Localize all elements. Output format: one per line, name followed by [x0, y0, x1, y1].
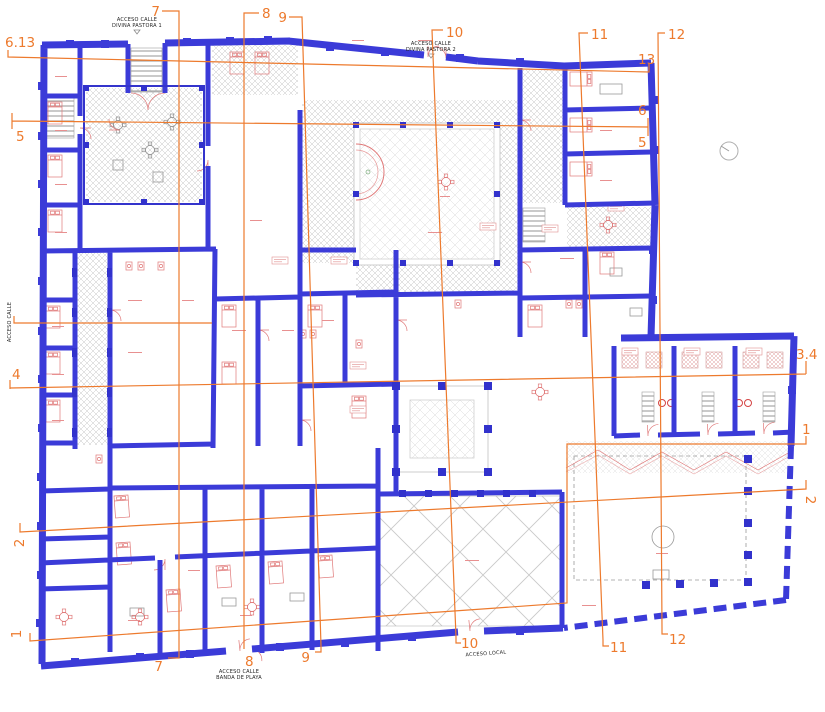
section-marker-top-12: 12 — [668, 27, 685, 43]
section-marker-left-6-13: 6.13 — [5, 35, 35, 51]
access-label-left-street: ACCESO CALLE — [7, 302, 13, 342]
courtyard-top-left — [86, 88, 202, 202]
patio-central — [360, 129, 494, 259]
floor-plan-svg: 7 8 9 10 11 12 13 6 5 3.4 1 2 6.13 5 4 2… — [0, 0, 825, 712]
patio-left-strip — [77, 253, 108, 445]
section-marker-bottom-7: 7 — [154, 659, 163, 675]
section-marker-right-13: 13 — [638, 52, 655, 68]
section-marker-left-5: 5 — [16, 129, 25, 145]
canopy-band — [566, 441, 790, 473]
access-label-banda-de-playa-line2: BANDA DE PLAYA — [216, 675, 262, 681]
section-marker-right-1: 1 — [802, 422, 811, 438]
patio-columned — [410, 400, 474, 458]
section-marker-top-10: 10 — [446, 25, 463, 41]
section-marker-right-6: 6 — [638, 103, 647, 119]
section-line-12 — [658, 33, 668, 634]
section-marker-left-1: 1 — [9, 630, 25, 639]
section-line-11 — [579, 33, 609, 646]
section-marker-top-8: 8 — [262, 6, 271, 22]
floor-plan-canvas: 7 8 9 10 11 12 13 6 5 3.4 1 2 6.13 5 4 2… — [0, 0, 825, 712]
courtyard-circle-feature — [652, 526, 674, 548]
section-marker-bottom-8: 8 — [245, 654, 254, 670]
section-marker-left-2: 2 — [12, 539, 28, 548]
section-marker-right-2: 2 — [802, 496, 818, 505]
section-marker-right-5: 5 — [638, 135, 647, 151]
access-label-divina-pastora-2-line2: DIVINA PASTORA 2 — [406, 47, 456, 53]
section-marker-bottom-12: 12 — [669, 632, 686, 648]
section-marker-left-4: 4 — [12, 367, 21, 383]
section-marker-bottom-11: 11 — [610, 640, 627, 656]
access-label-divina-pastora-1-line2: DIVINA PASTORA 1 — [112, 23, 162, 29]
section-marker-bottom-10: 10 — [461, 636, 478, 652]
north-circle-icon — [720, 142, 738, 160]
section-marker-top-9: 9 — [278, 10, 287, 26]
section-marker-top-11: 11 — [591, 27, 608, 43]
section-marker-right-3-4: 3.4 — [796, 347, 817, 363]
section-marker-bottom-9: 9 — [301, 650, 310, 666]
